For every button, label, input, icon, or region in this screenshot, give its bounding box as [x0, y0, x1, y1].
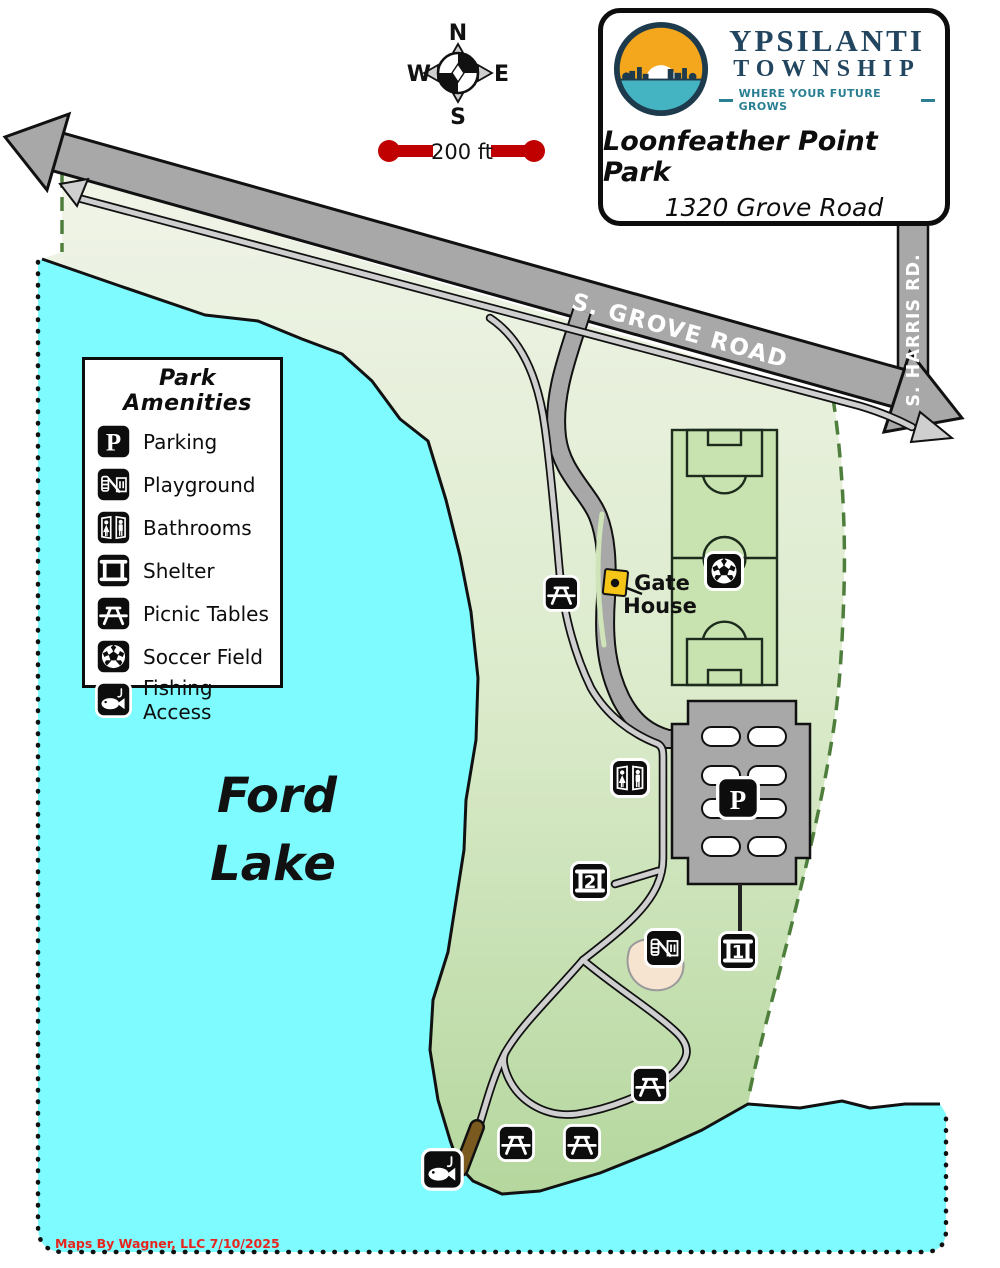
picnic-tables-icon: [564, 1125, 599, 1160]
soccer-field-icon: [706, 553, 743, 590]
bathrooms-icon: [95, 509, 132, 546]
gate-house-label-1: Gate: [634, 571, 690, 595]
legend-item-parking: P Parking: [95, 420, 280, 463]
park-address: 1320 Grove Road: [665, 193, 884, 222]
parking-icon: P: [718, 778, 759, 819]
legend-label: Soccer Field: [143, 645, 263, 669]
fishing-icon: [95, 681, 132, 718]
svg-text:E: E: [494, 62, 509, 87]
org-tagline: WHERE YOUR FUTURE GROWS: [719, 87, 935, 113]
harris-road-label: S. HARRIS RD.: [904, 253, 924, 406]
svg-text:Ford: Ford: [217, 768, 338, 824]
svg-text:P: P: [106, 429, 121, 456]
tagline-dash: [921, 99, 935, 102]
org-name-line2: TOWNSHIP: [733, 56, 921, 84]
park-map-page: Gate House 2 1 P S. GROVE ROAD S. HARRIS…: [0, 0, 1000, 1268]
legend-item-bathrooms: Bathrooms: [95, 506, 280, 549]
legend-item-soccer-field: Soccer Field: [95, 635, 280, 678]
legend-label: Shelter: [143, 559, 215, 583]
picnic-icon: [95, 595, 132, 632]
legend-item-picnic-tables: Picnic Tables: [95, 592, 280, 635]
svg-text:P: P: [730, 785, 747, 815]
tagline-dash: [719, 99, 733, 102]
road-arrow-west: [5, 114, 69, 190]
legend-label: Parking: [143, 430, 217, 454]
shelter-1-icon: 1: [720, 933, 757, 970]
picnic-tables-icon: [632, 1067, 667, 1102]
parking-icon: P: [95, 423, 132, 460]
legend-title: Park Amenities: [95, 366, 280, 416]
park-name: Loonfeather Point Park: [603, 126, 945, 188]
svg-text:1: 1: [732, 942, 745, 963]
shelter-2-icon: 2: [572, 863, 609, 900]
legend-item-shelter: Shelter: [95, 549, 280, 592]
playground-icon: [646, 930, 683, 967]
playground-icon: [95, 466, 132, 503]
fishing-access-icon: [423, 1150, 463, 1190]
map-credit: Maps By Wagner, LLC 7/10/2025: [55, 1236, 280, 1251]
township-logo-icon: [613, 21, 709, 117]
svg-text:N: N: [449, 21, 467, 46]
picnic-tables-icon: [544, 576, 578, 610]
scale-bar: 200 ft: [378, 136, 545, 166]
park-amenities-legend: Park Amenities P Parking Playground Bath…: [82, 357, 283, 688]
legend-label: Bathrooms: [143, 516, 252, 540]
legend-label: Playground: [143, 473, 255, 497]
title-card: YPSILANTI TOWNSHIP WHERE YOUR FUTURE GRO…: [598, 8, 950, 226]
soccer-icon: [95, 638, 132, 675]
legend-item-fishing-access: Fishing Access: [95, 678, 280, 721]
org-name-line1: YPSILANTI: [729, 25, 925, 56]
bathrooms-icon: [612, 760, 649, 797]
shelter-icon: [95, 552, 132, 589]
legend-label: Picnic Tables: [143, 602, 269, 626]
svg-text:W: W: [407, 62, 431, 87]
compass-east-pointer: [478, 65, 492, 81]
scale-label: 200 ft: [431, 140, 493, 164]
legend-label: Fishing Access: [143, 676, 280, 724]
legend-item-playground: Playground: [95, 463, 280, 506]
picnic-tables-icon: [498, 1125, 533, 1160]
svg-text:Lake: Lake: [210, 836, 336, 892]
compass-rose: N S W E: [407, 21, 509, 130]
svg-text:2: 2: [584, 872, 597, 893]
svg-text:S: S: [450, 105, 466, 130]
gate-house-label-2: House: [623, 594, 697, 618]
